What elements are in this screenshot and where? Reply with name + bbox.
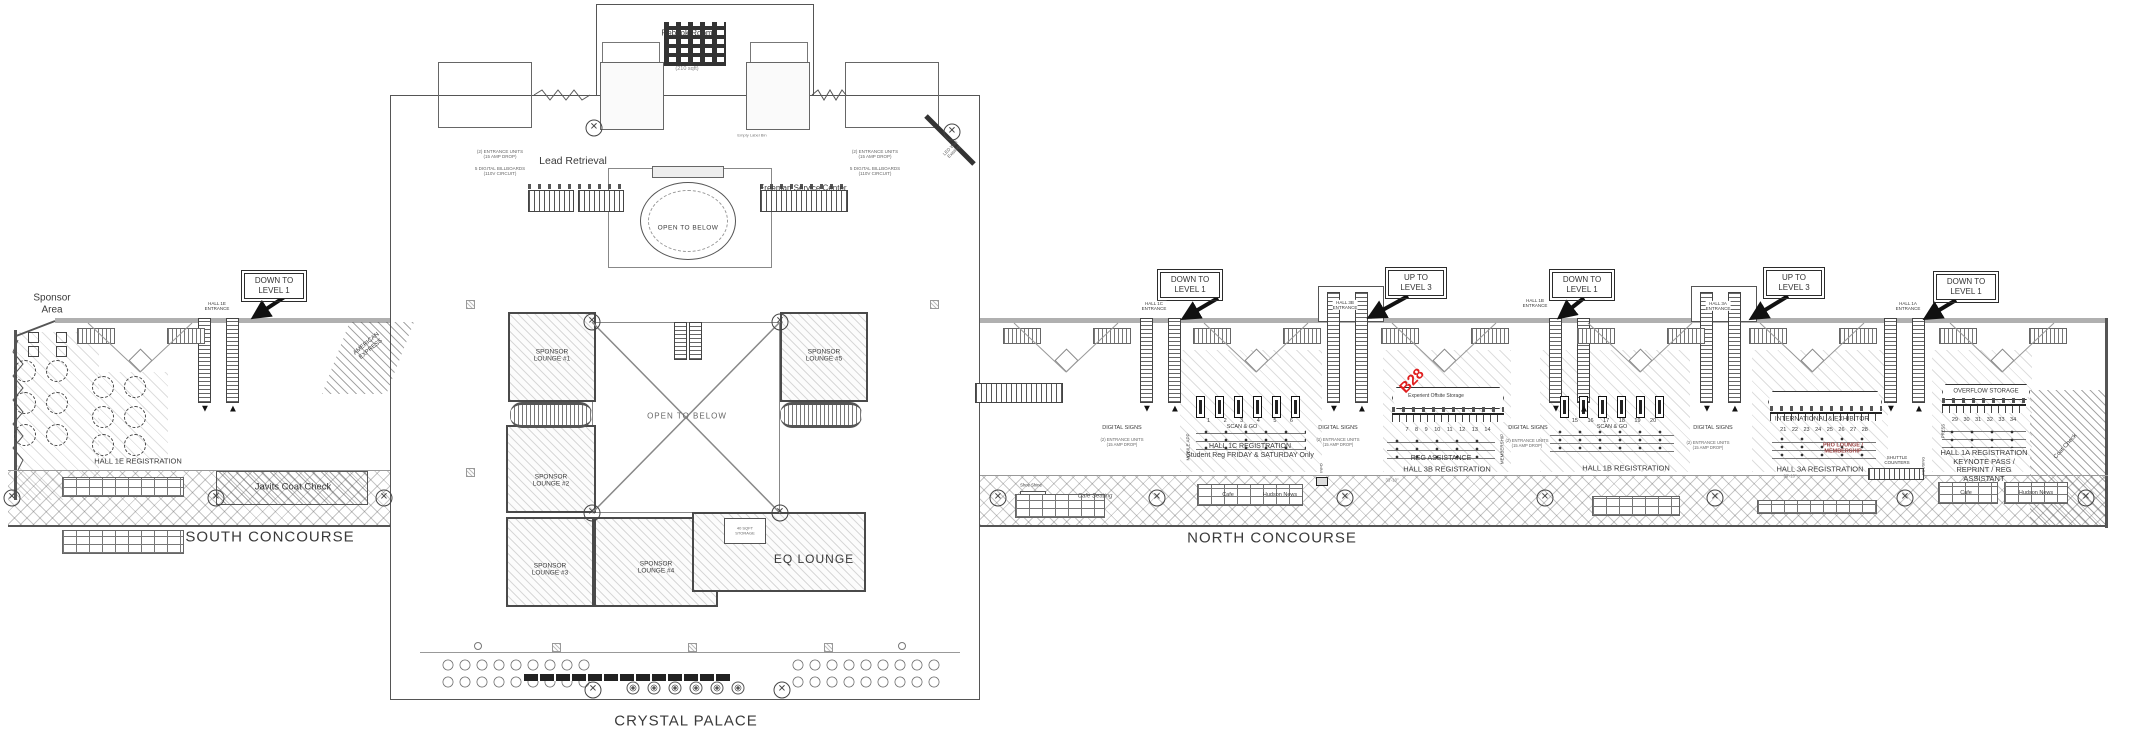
round-table [46, 392, 68, 414]
open-to-below-rotunda-label: OPEN TO BELOW [658, 224, 719, 231]
cafe-label-1: Cafe [1222, 492, 1234, 498]
hall-1c-escalator-down [1140, 318, 1153, 403]
north-concourse-label: NORTH CONCOURSE [1187, 529, 1357, 546]
sponsor-lounge-5-label: SPONSOR LOUNGE #5 [806, 349, 843, 364]
north-west-stair [975, 383, 1063, 403]
callout-down-to-level1-hall1e: DOWN TO LEVEL 1 [244, 273, 304, 299]
scan-go-kiosk [1560, 396, 1569, 418]
top-entry-vestibule-left [438, 62, 532, 128]
coat-closet [1283, 328, 1321, 344]
hall-1c-escalator-up [1168, 318, 1181, 403]
escalator-up-arrow: ▲ [1357, 404, 1367, 415]
round-table [14, 392, 36, 414]
round-table [46, 424, 68, 446]
escalator-up-arrow: ▲ [228, 404, 238, 415]
crystal-entry-row-left [440, 656, 590, 690]
digital-billboards-note: 5 DIGITAL BILLBOARDS (110V CIRCUIT) [850, 166, 900, 176]
callout-down-to-level1-hall1c: DOWN TO LEVEL 1 [1160, 272, 1220, 298]
column [711, 682, 724, 695]
coat-closet [167, 328, 205, 344]
column [732, 682, 745, 695]
hall-3b-registration-label: HALL 3B REGISTRATION [1403, 466, 1491, 475]
callout-down-to-level1-hall1b: DOWN TO LEVEL 1 [1552, 272, 1612, 298]
reg-desk-chairs-3a [1770, 406, 1882, 411]
column [669, 682, 682, 695]
column-x-marker: ✕ [584, 505, 601, 522]
bench-grid-north-3 [1757, 500, 1877, 514]
round-table [46, 360, 68, 382]
escalator-down-arrow: ▼ [1142, 404, 1152, 415]
round-table [92, 434, 114, 456]
experient-storage-label: Experient Offsite Storage [1408, 394, 1464, 400]
queue-rails-1b [1550, 428, 1674, 452]
grid-marker [930, 300, 939, 309]
freeman-counter [760, 190, 848, 212]
dimension-3a: 33'-10" [1784, 475, 1797, 480]
callout-up-to-level3-hall3b: UP TO LEVEL 3 [1388, 270, 1444, 296]
digital-signs-label: DIGITAL SIGNS [1508, 425, 1547, 431]
hall-1a-entrance-label: HALL 1A ENTRANCE [1896, 301, 1921, 311]
lead-retrieval-label: Lead Retrieval [539, 155, 607, 167]
cafe-seating-label: Cafe Seating [1078, 494, 1113, 501]
column [648, 682, 661, 695]
hudson-news-label-1: Hudson News [1263, 492, 1297, 498]
javits-level2-floorplan: ✕ ✕ ✕ ✕ ✕ ✕ ✕ ✕ ✕ ✕ ✕ ✕ ✕ ✕ ✕ ✕ ✕ ✕ ▼ ▲ … [0, 0, 2129, 734]
column-x-marker: ✕ [772, 505, 789, 522]
lounge-escalators-left [510, 402, 592, 428]
square-table [28, 332, 39, 343]
column-x-marker: ✕ [1897, 490, 1914, 507]
scan-go-kiosk [1196, 396, 1205, 418]
hall-1a-escalator-down [1884, 318, 1897, 403]
grid-marker [466, 468, 475, 477]
escalator-up-arrow: ▲ [1579, 404, 1589, 415]
hall-1e-registration-label: HALL 1E REGISTRATION [94, 458, 182, 467]
hall-1c-entrance-label: HALL 1C ENTRANCE [1142, 301, 1167, 311]
escalator-up-arrow: ▲ [1170, 404, 1180, 415]
escalator-down-arrow: ▼ [1702, 404, 1712, 415]
info-label: INFO [1320, 463, 1325, 473]
coat-closet [1193, 328, 1231, 344]
lounge-escalators-right [780, 402, 862, 428]
callout-up-to-level3-hall3a: UP TO LEVEL 3 [1766, 270, 1822, 296]
cafe-label-2: Cafe [1960, 490, 1972, 496]
scan-go-kiosk [1215, 396, 1224, 418]
coat-closet [1093, 328, 1131, 344]
scan-and-go-label-1b: SCAN & GO [1597, 424, 1628, 430]
escalator-down-arrow: ▼ [1329, 404, 1339, 415]
sponsor-lounge-4-label: SPONSOR LOUNGE #4 [638, 561, 675, 576]
column-x-marker: ✕ [584, 314, 601, 331]
column-x-marker: ✕ [586, 120, 603, 137]
empty-label-bin-label: Empty Label Bin [737, 134, 766, 139]
scan-go-kiosk [1234, 396, 1243, 418]
column-x-marker: ✕ [1537, 490, 1554, 507]
reg-assistance-label: REG ASSISTANCE [1411, 455, 1472, 463]
bench-grid-south-1 [62, 477, 184, 497]
square-table [56, 332, 67, 343]
eq-lounge-label: EQ LOUNGE [774, 553, 854, 567]
scan-and-go-label-1c: SCAN & GO [1227, 424, 1258, 430]
hall-1c-registration-label: HALL 1C REGISTRATION [1209, 443, 1291, 451]
column-x-marker: ✕ [774, 682, 791, 699]
callout-down-to-level1-hall1a: DOWN TO LEVEL 1 [1936, 274, 1996, 300]
sponsor-area-label: Sponsor Area [33, 293, 70, 316]
crystal-entry-row-right [790, 656, 940, 690]
coat-closet [1667, 328, 1705, 344]
rotunda-opening-inner [648, 190, 728, 252]
entrance-units-note: (2) ENTRANCE UNITS (15 AMP DROP) [1686, 441, 1729, 451]
entrance-units-note: (2) ENTRANCE UNITS (15 AMP DROP) [477, 149, 523, 159]
reg-desk-3b [1392, 413, 1504, 422]
round-table [124, 376, 146, 398]
column [690, 682, 703, 695]
column-x-marker: ✕ [944, 124, 961, 141]
scan-go-kiosk [1636, 396, 1645, 418]
south-concourse-label: SOUTH CONCOURSE [185, 528, 354, 545]
vestibule-marker [1054, 348, 1078, 372]
coat-closet [1749, 328, 1787, 344]
lead-retrieval-counter-2 [578, 190, 624, 212]
lead-retrieval-chairs-1 [528, 184, 574, 189]
press-label: PRESS [1942, 424, 1947, 438]
reg-desk-chairs-3b [1392, 407, 1504, 412]
coat-closet [77, 328, 115, 344]
desk-numbers-3b: 7 8 9 10 11 12 13 14 [1405, 427, 1490, 433]
coat-closet [1839, 328, 1877, 344]
column-x-marker: ✕ [990, 490, 1007, 507]
escalator-up-arrow: ▲ [1914, 404, 1924, 415]
hall-1b-escalator-down [1549, 318, 1562, 403]
shuttle-counter-furniture [1868, 468, 1924, 480]
membership-label: MEMBERSHIP [1499, 434, 1504, 464]
column-x-marker: ✕ [1149, 490, 1166, 507]
stair-core-right [746, 62, 810, 130]
grid-marker [688, 643, 697, 652]
atrium-escalator-right [689, 322, 702, 360]
atrium-escalator-left [674, 322, 687, 360]
column-small [898, 642, 906, 650]
grid-marker [552, 643, 561, 652]
digital-billboards-note: 5 DIGITAL BILLBOARDS (110V CIRCUIT) [475, 166, 525, 176]
shuttle-counters-label: SHUTTLE COUNTERS [1884, 455, 1909, 465]
hall-1a-registration-label: HALL 1A REGISTRATION KEYNOTE PASS / REPR… [1940, 449, 2027, 484]
coat-closet [1003, 328, 1041, 344]
coat-closet [2029, 328, 2067, 344]
column-x-marker: ✕ [376, 490, 393, 507]
freeman-service-label: Freeman Service Center [759, 183, 846, 192]
grid-marker [824, 643, 833, 652]
hall-1e-escalator-up [226, 318, 239, 403]
column-x-marker: ✕ [4, 490, 21, 507]
hall-1b-registration-label: HALL 1B REGISTRATION [1582, 465, 1670, 474]
escalator-down-arrow: ▼ [1551, 404, 1561, 415]
sponsor-lounge-1-label: SPONSOR LOUNGE #1 [534, 349, 571, 364]
rotunda-stage [652, 166, 724, 178]
vestibule-marker [128, 348, 152, 372]
scan-go-kiosk [1253, 396, 1262, 418]
crystal-dark-band [522, 674, 732, 681]
column-x-marker: ✕ [2078, 490, 2095, 507]
overflow-storage-label: OVERFLOW STORAGE [1953, 389, 2018, 396]
scan-go-kiosk [1598, 396, 1607, 418]
column-x-marker: ✕ [1707, 490, 1724, 507]
reg-desk-1a [1942, 404, 2026, 413]
hall-1a-escalator-up [1912, 318, 1925, 403]
round-table [124, 406, 146, 428]
escalator-up-arrow: ▲ [1730, 404, 1740, 415]
round-table [124, 434, 146, 456]
entrance-units-note: (2) ENTRANCE UNITS (15 AMP DROP) [1316, 438, 1359, 448]
pro-lounge-membership-label: PRO LOUNGE / MEMBERSHIP [1823, 443, 1863, 456]
scan-go-kiosk [1291, 396, 1300, 418]
bench-grid-north-2 [1592, 496, 1680, 516]
lead-retrieval-chairs-2 [578, 184, 624, 189]
rebook-sqft-label: (210 sqft) [675, 66, 698, 72]
digital-signs-label: DIGITAL SIGNS [1102, 425, 1141, 431]
south-concourse-top-wall [55, 318, 390, 323]
hall-1c-registration-sub-label: Student Reg FRIDAY & SATURDAY Only [1186, 452, 1314, 460]
reg-desk-chairs-1a [1942, 398, 2026, 403]
hall-3a-entrance-label: HALL 3A ENTRANCE [1706, 301, 1731, 311]
stair-core-left [600, 62, 664, 130]
rebook-room-label: Rebook Room [661, 28, 712, 37]
column-x-marker: ✕ [208, 490, 225, 507]
square-table [28, 346, 39, 357]
digital-signs-label: DIGITAL SIGNS [1318, 425, 1357, 431]
mobile-app-label: MOBILE APP [1185, 433, 1190, 460]
hall-1e-entrance-label: HALL 1E ENTRANCE [205, 301, 230, 311]
info-kiosk [1316, 477, 1328, 486]
crystal-palace-label: CRYSTAL PALACE [614, 712, 758, 729]
entrance-units-note: (2) ENTRANCE UNITS (15 AMP DROP) [1505, 439, 1548, 449]
sponsor-lounge-3-label: SPONSOR LOUNGE #3 [532, 563, 569, 578]
column-x-marker: ✕ [1337, 490, 1354, 507]
shoe-shine-label: Shoe Shine [1020, 484, 1042, 489]
scan-go-kiosk [1272, 396, 1281, 418]
coat-closet [1471, 328, 1509, 344]
crystal-inner-line [420, 652, 960, 653]
column-x-marker: ✕ [585, 682, 602, 699]
desk-numbers-3a: 21 22 23 24 25 26 27 28 [1780, 427, 1868, 433]
coat-closet [1381, 328, 1419, 344]
coat-closet [1939, 328, 1977, 344]
escalator-down-arrow: ▼ [1886, 404, 1896, 415]
round-table [92, 406, 114, 428]
column [627, 682, 640, 695]
sponsor-lounge-2-label: SPONSOR LOUNGE #2 [533, 474, 570, 489]
round-table [14, 424, 36, 446]
top-entry-vestibule-right [845, 62, 939, 128]
open-to-below-atrium-label: OPEN TO BELOW [647, 411, 727, 420]
column-x-marker: ✕ [772, 314, 789, 331]
bench-grid-south-2 [62, 530, 184, 554]
square-table [56, 346, 67, 357]
scan-go-kiosk [1617, 396, 1626, 418]
housing-label: HOUSING [1922, 457, 1927, 476]
escalator-down-arrow: ▼ [200, 404, 210, 415]
international-exhibitor-label: INTERNATIONAL & EXHIBITOR [1775, 415, 1869, 422]
dimension-3b: 33'-10" [1386, 479, 1399, 484]
desk-numbers-1a: 29 30 31 32 33 34 [1952, 417, 2016, 423]
entrance-units-note: (2) ENTRANCE UNITS (15 AMP DROP) [1100, 438, 1143, 448]
digital-signs-label: DIGITAL SIGNS [1693, 425, 1732, 431]
javits-coat-check-label: Javits Coat Check [255, 483, 332, 494]
grid-marker [466, 300, 475, 309]
storage-40sqft-label: 40 SQFT STORAGE [735, 526, 755, 535]
scan-go-kiosk [1655, 396, 1664, 418]
hall-3b-entrance-label: HALL 3B ENTRANCE [1333, 300, 1358, 310]
sponsor-lounge-2-area [506, 425, 596, 513]
column-small [474, 642, 482, 650]
queue-rails-1a [1942, 428, 2026, 448]
hall-1b-entrance-label: HALL 1B ENTRANCE [1523, 298, 1548, 308]
round-table [92, 376, 114, 398]
hudson-news-label-2: Hudson News [2019, 490, 2053, 496]
lead-retrieval-counter-1 [528, 190, 574, 212]
entrance-units-note: (2) ENTRANCE UNITS (15 AMP DROP) [852, 149, 898, 159]
coat-closet [1577, 328, 1615, 344]
round-table [14, 360, 36, 382]
